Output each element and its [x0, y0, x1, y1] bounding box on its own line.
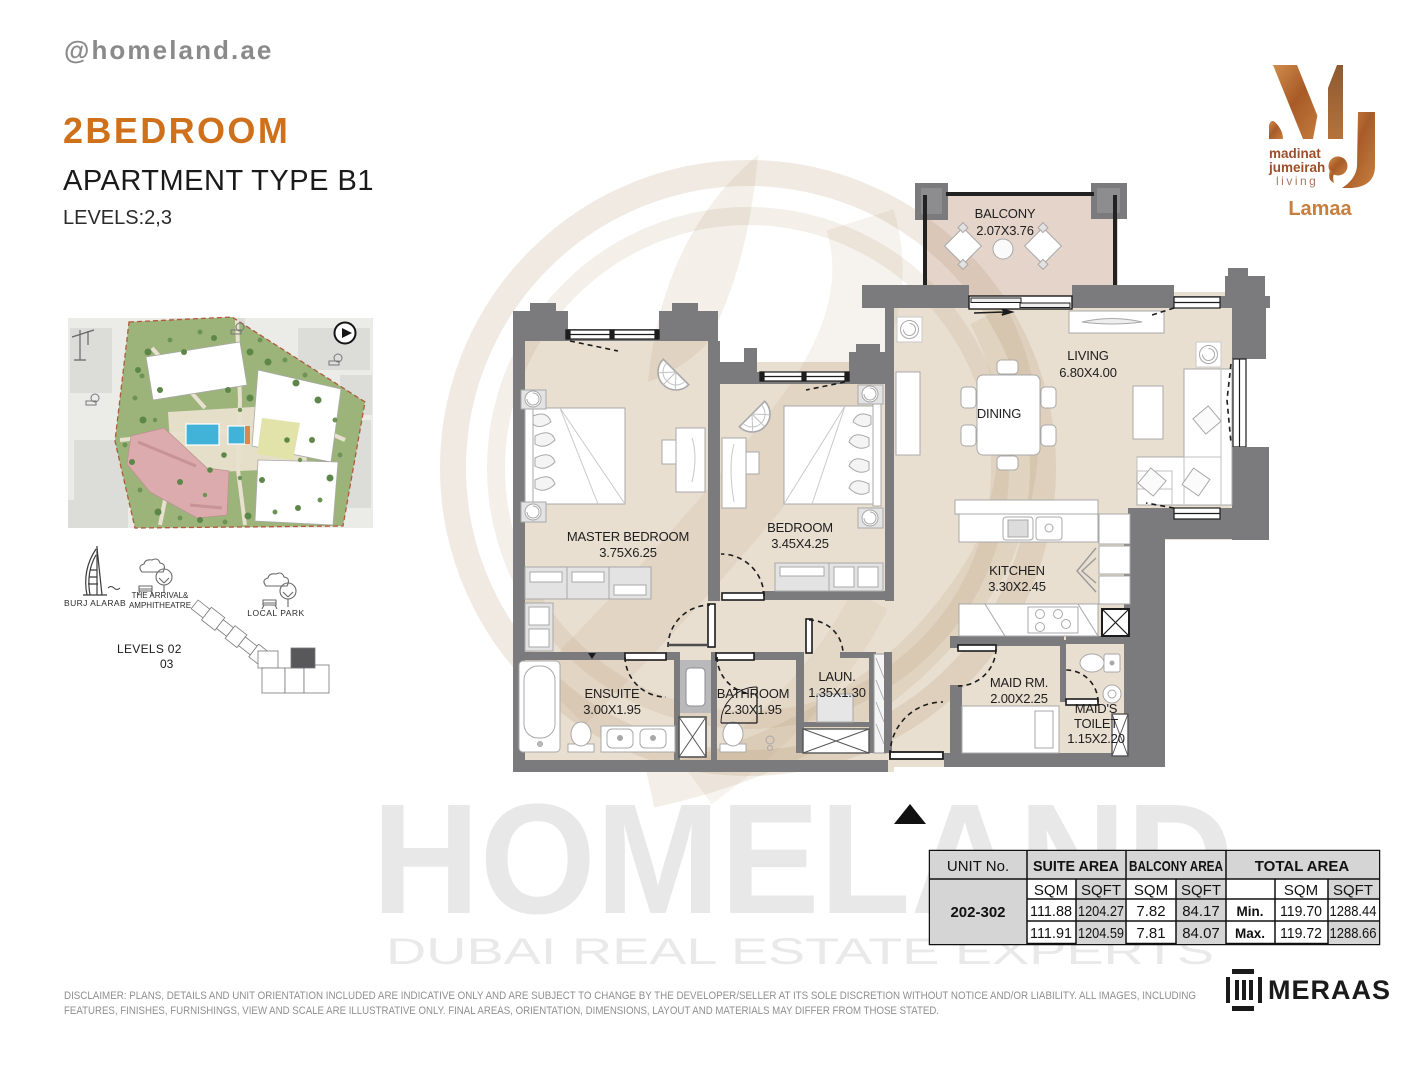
svg-text:LEVELS:2,3: LEVELS:2,3	[63, 207, 172, 229]
svg-text:7.82: 7.82	[1136, 903, 1165, 920]
svg-text:MASTER BEDROOM: MASTER BEDROOM	[567, 529, 689, 544]
svg-text:jumeirah: jumeirah	[1268, 160, 1325, 175]
svg-text:84.07: 84.07	[1182, 925, 1220, 942]
svg-text:TOILET: TOILET	[1074, 716, 1118, 731]
svg-text:MAID'S: MAID'S	[1075, 701, 1118, 716]
svg-text:3.00X1.95: 3.00X1.95	[583, 702, 640, 717]
svg-text:SQM: SQM	[1034, 882, 1068, 899]
svg-text:1.35X1.30: 1.35X1.30	[808, 685, 865, 700]
svg-text:2.07X3.76: 2.07X3.76	[976, 223, 1033, 238]
svg-text:BURJ ALARAB: BURJ ALARAB	[64, 598, 126, 608]
svg-text:3.30X2.45: 3.30X2.45	[988, 579, 1045, 594]
svg-text:6.80X4.00: 6.80X4.00	[1059, 365, 1116, 380]
svg-text:202-302: 202-302	[950, 904, 1005, 921]
svg-text:LAUN.: LAUN.	[818, 669, 855, 684]
svg-text:LOCAL PARK: LOCAL PARK	[247, 608, 304, 618]
svg-text:SQM: SQM	[1284, 882, 1318, 899]
svg-text:LEVELS 02: LEVELS 02	[117, 642, 182, 656]
svg-text:119.72: 119.72	[1280, 925, 1322, 942]
svg-text:UNIT No.: UNIT No.	[947, 858, 1009, 875]
svg-text:Lamaa: Lamaa	[1288, 198, 1352, 220]
svg-text:84.17: 84.17	[1182, 903, 1220, 920]
svg-text:119.70: 119.70	[1280, 903, 1322, 920]
svg-text:@homeland.ae: @homeland.ae	[64, 35, 274, 65]
svg-text:2.30X1.95: 2.30X1.95	[724, 702, 781, 717]
svg-text:DISCLAIMER: PLANS, DETAILS AND: DISCLAIMER: PLANS, DETAILS AND UNIT ORIE…	[64, 990, 1196, 1002]
svg-text:THE ARRIVAL&: THE ARRIVAL&	[132, 591, 189, 600]
svg-text:111.88: 111.88	[1030, 903, 1072, 920]
svg-text:ENSUITE: ENSUITE	[585, 686, 640, 701]
svg-text:madinat: madinat	[1269, 146, 1321, 161]
svg-text:SQFT: SQFT	[1081, 882, 1121, 899]
svg-text:1204.59: 1204.59	[1078, 925, 1124, 942]
svg-text:BALCONY: BALCONY	[975, 206, 1036, 221]
svg-text:DINING: DINING	[977, 406, 1021, 421]
svg-text:AMPHITHEATRE: AMPHITHEATRE	[129, 601, 191, 610]
svg-text:MAID RM.: MAID RM.	[990, 675, 1048, 690]
svg-text:2BEDROOM: 2BEDROOM	[63, 110, 290, 151]
svg-text:living: living	[1276, 174, 1318, 188]
svg-text:BEDROOM: BEDROOM	[767, 520, 833, 535]
svg-text:FEATURES, FINISHES, FURNISHING: FEATURES, FINISHES, FURNISHINGS, VIEW AN…	[64, 1005, 939, 1017]
svg-text:APARTMENT TYPE B1: APARTMENT TYPE B1	[63, 165, 374, 197]
svg-text:MERAAS: MERAAS	[1268, 975, 1391, 1005]
svg-text:KITCHEN: KITCHEN	[989, 563, 1045, 578]
svg-text:SUITE AREA: SUITE AREA	[1033, 858, 1119, 875]
svg-text:SQFT: SQFT	[1181, 882, 1221, 899]
svg-text:Max.: Max.	[1235, 926, 1265, 941]
svg-text:TOTAL AREA: TOTAL AREA	[1255, 858, 1350, 875]
svg-text:03: 03	[160, 657, 174, 671]
svg-text:SQFT: SQFT	[1333, 882, 1373, 899]
svg-text:1204.27: 1204.27	[1078, 903, 1124, 920]
svg-text:BATHROOM: BATHROOM	[717, 686, 790, 701]
svg-text:3.75X6.25: 3.75X6.25	[599, 545, 656, 560]
svg-text:1288.44: 1288.44	[1330, 903, 1377, 920]
svg-text:7.81: 7.81	[1136, 925, 1165, 942]
svg-text:LIVING: LIVING	[1067, 348, 1109, 363]
svg-text:111.91: 111.91	[1030, 925, 1072, 942]
svg-text:BALCONY AREA: BALCONY AREA	[1129, 858, 1223, 875]
svg-text:Min.: Min.	[1237, 904, 1264, 919]
svg-text:1288.66: 1288.66	[1330, 925, 1377, 942]
svg-text:SQM: SQM	[1134, 882, 1168, 899]
svg-text:2.00X2.25: 2.00X2.25	[990, 691, 1047, 706]
svg-text:1.15X2.20: 1.15X2.20	[1067, 731, 1124, 746]
svg-text:3.45X4.25: 3.45X4.25	[771, 536, 828, 551]
